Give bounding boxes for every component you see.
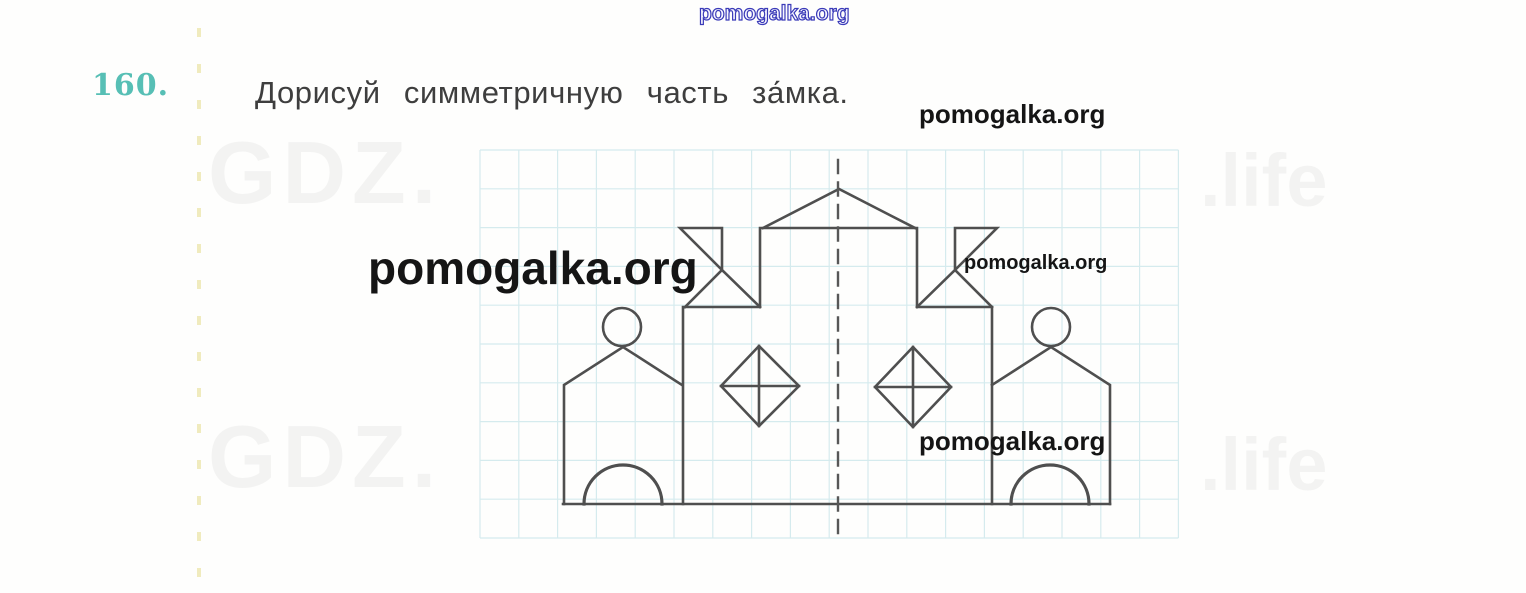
left-tower-outline <box>564 347 682 504</box>
watermark-lower-right: pomogalka.org <box>919 426 1105 457</box>
task-number: 160. <box>92 68 169 103</box>
watermark-mid-right: pomogalka.org <box>964 252 1107 275</box>
watermark-upper-right: pomogalka.org <box>919 99 1105 130</box>
task-title: Дорисуй симметричную часть за́мка. <box>255 75 849 111</box>
right-tower-circle <box>1032 308 1070 346</box>
left-diamond-window <box>721 346 799 426</box>
grid-lines <box>480 150 1178 538</box>
watermark-large-left: pomogalka.org <box>368 241 698 295</box>
left-tower-arch <box>584 465 662 504</box>
right-diamond-window <box>875 347 951 427</box>
workbook-page: GDZ. .life GDZ. .life 160. Дорисуй симме… <box>0 0 1526 593</box>
watermark-top-center: pomogalka.org <box>699 2 850 26</box>
